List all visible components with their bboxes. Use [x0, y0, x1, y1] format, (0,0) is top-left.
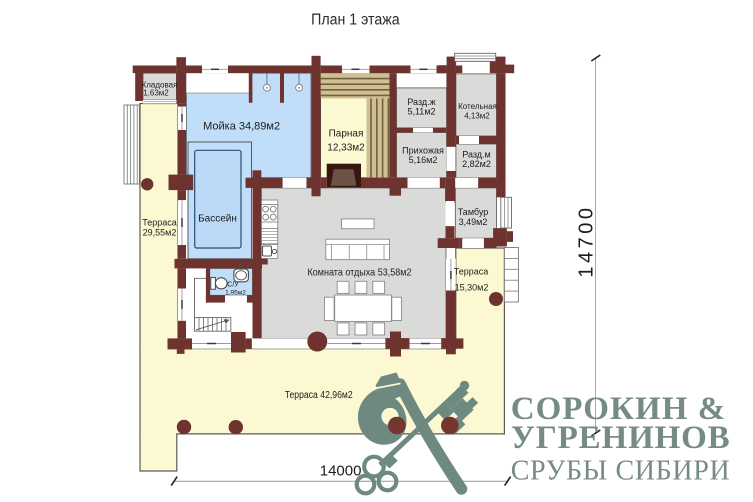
svg-text:С/У: С/У [227, 282, 239, 289]
svg-text:Парная: Парная [329, 129, 364, 140]
svg-text:5,11м2: 5,11м2 [407, 107, 435, 117]
svg-text:План 1 этажа: План 1 этажа [311, 11, 400, 28]
svg-text:Тамбур: Тамбур [458, 207, 489, 217]
svg-text:Мойка 34,89м2: Мойка 34,89м2 [203, 120, 280, 132]
svg-text:Разд.м: Разд.м [462, 150, 490, 160]
svg-text:15,30м2: 15,30м2 [455, 283, 489, 293]
svg-text:СРУБЫ СИБИРИ: СРУБЫ СИБИРИ [511, 455, 730, 486]
svg-text:14000: 14000 [320, 463, 362, 480]
svg-text:Котельная: Котельная [458, 102, 497, 111]
svg-text:29,55м2: 29,55м2 [143, 228, 177, 238]
svg-text:14700: 14700 [576, 204, 598, 277]
svg-text:1,63м2: 1,63м2 [143, 88, 169, 97]
svg-text:Терраса 42,96м2: Терраса 42,96м2 [285, 390, 353, 401]
svg-text:4,13м2: 4,13м2 [464, 112, 490, 121]
svg-text:Прихожая: Прихожая [402, 146, 444, 156]
svg-text:5,16м2: 5,16м2 [409, 155, 438, 165]
svg-text:1,95м2: 1,95м2 [225, 289, 246, 296]
svg-text:3,49м2: 3,49м2 [459, 217, 488, 227]
svg-text:Разд.ж: Разд.ж [407, 97, 435, 107]
svg-text:Терраса: Терраса [454, 267, 489, 277]
svg-text:2,82м2: 2,82м2 [462, 159, 491, 169]
svg-text:Комната отдыха 53,58м2: Комната отдыха 53,58м2 [308, 266, 412, 278]
svg-text:12,33м2: 12,33м2 [327, 143, 365, 154]
svg-text:УГРЕНИНОВ: УГРЕНИНОВ [511, 420, 730, 456]
svg-text:Бассейн: Бассейн [198, 214, 237, 225]
svg-text:Терраса: Терраса [142, 218, 177, 228]
